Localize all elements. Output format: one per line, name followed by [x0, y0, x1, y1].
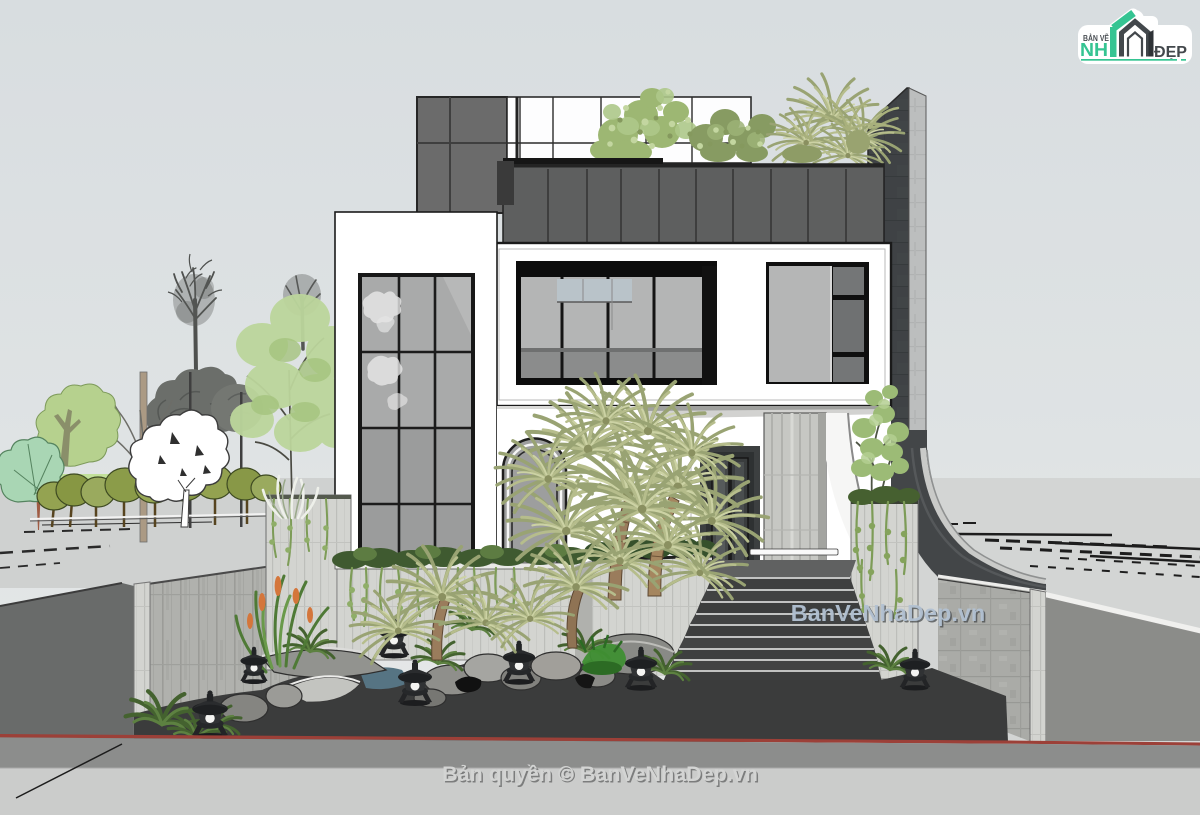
svg-text:BanVeNhaDep.vn: BanVeNhaDep.vn [791, 600, 986, 626]
svg-text:Bản quyền © BanVeNhaDep.vn: Bản quyền © BanVeNhaDep.vn [442, 762, 758, 786]
svg-text:ĐẸP: ĐẸP [1154, 44, 1187, 61]
svg-text:NH: NH [1080, 40, 1108, 60]
